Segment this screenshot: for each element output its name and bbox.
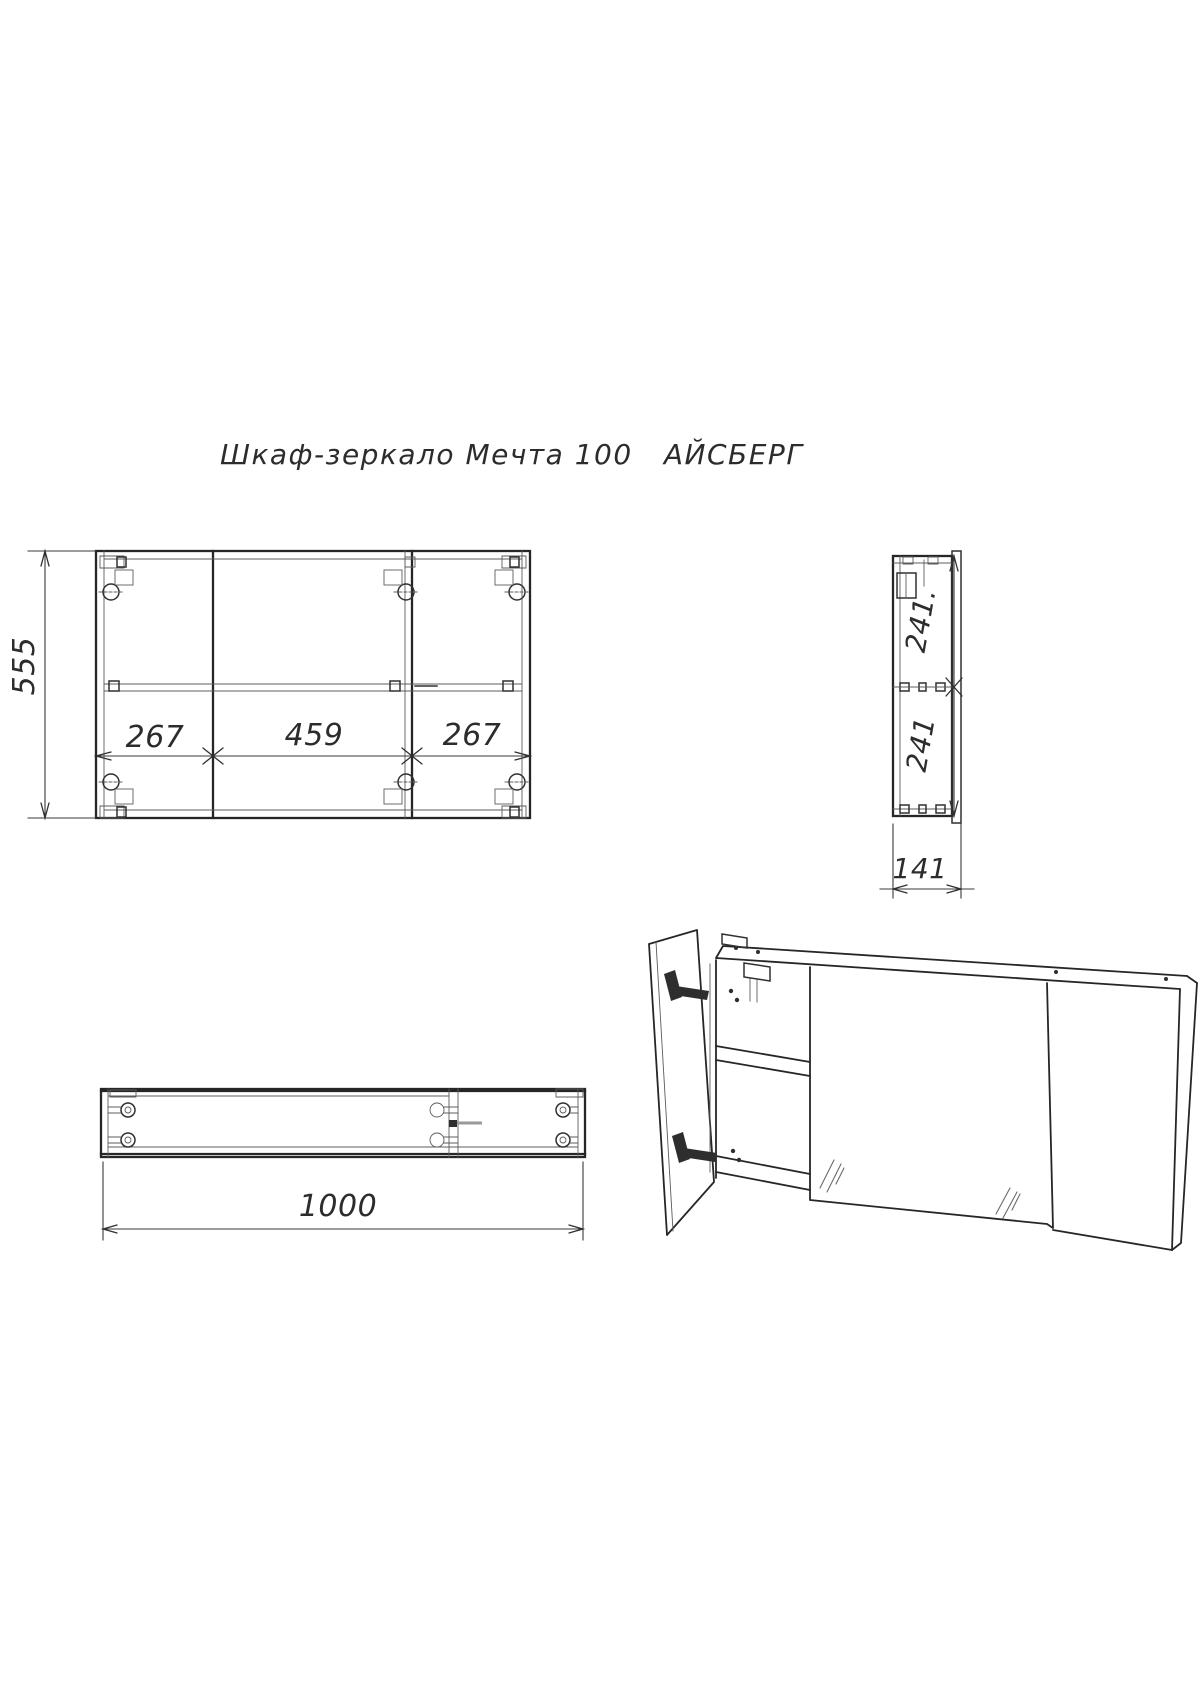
persp-open-door [649,930,714,1235]
plan-width-dim-label: 1000 [299,1189,377,1224]
side-upper-dim-label: 241. [899,586,943,655]
plan-view: 1000 [101,1089,585,1240]
technical-drawing: Шкаф-зеркало Мечта 100 АЙСБЕРГ 555 267 4… [0,0,1200,1696]
persp-top-strip [716,946,1197,989]
front-inner-lines [104,551,522,818]
plan-fitting-mark [449,1120,457,1127]
front-door-dividers [213,551,412,818]
drawing-sheet: Шкаф-зеркало Мечта 100 АЙСБЕРГ 555 267 4… [0,0,1200,1696]
front-mount-brackets [100,556,526,818]
front-view: 555 267 459 267 [7,551,530,818]
side-lower-dim-label: 241 [900,714,942,774]
persp-mirror-hatch-left [820,1160,844,1192]
persp-mirror-doors [810,967,1172,1250]
persp-right-side [1172,983,1197,1250]
persp-bottom-panel [716,1156,810,1190]
front-bracket-plates [117,557,519,817]
persp-mirror-hatch-right [996,1188,1020,1218]
drawing-title: Шкаф-зеркало Мечта 100 АЙСБЕРГ [220,437,804,471]
front-width-dim-center: 459 [285,718,344,753]
side-view: 241. 241 141 [880,551,974,898]
persp-hinges [664,970,717,1163]
plan-cam-locks [108,1103,578,1147]
front-hinges [99,570,529,804]
front-width-dim-right: 267 [443,718,502,753]
front-height-dim-label: 555 [7,637,42,696]
front-width-dim-left: 267 [126,720,185,755]
plan-inner-lines [108,1089,578,1157]
plan-thick-edges [101,1091,585,1154]
persp-fitting-box [744,963,770,981]
persp-shelf [716,1046,810,1076]
front-outline [96,551,530,818]
perspective-view [649,930,1197,1250]
persp-fitting-pins [750,979,757,1002]
persp-screw-dots [729,946,1168,1162]
side-top-clips [903,557,938,586]
side-depth-dim-label: 141 [893,852,948,885]
front-shelf-lines [104,684,522,691]
front-shelf-supports [109,681,513,691]
